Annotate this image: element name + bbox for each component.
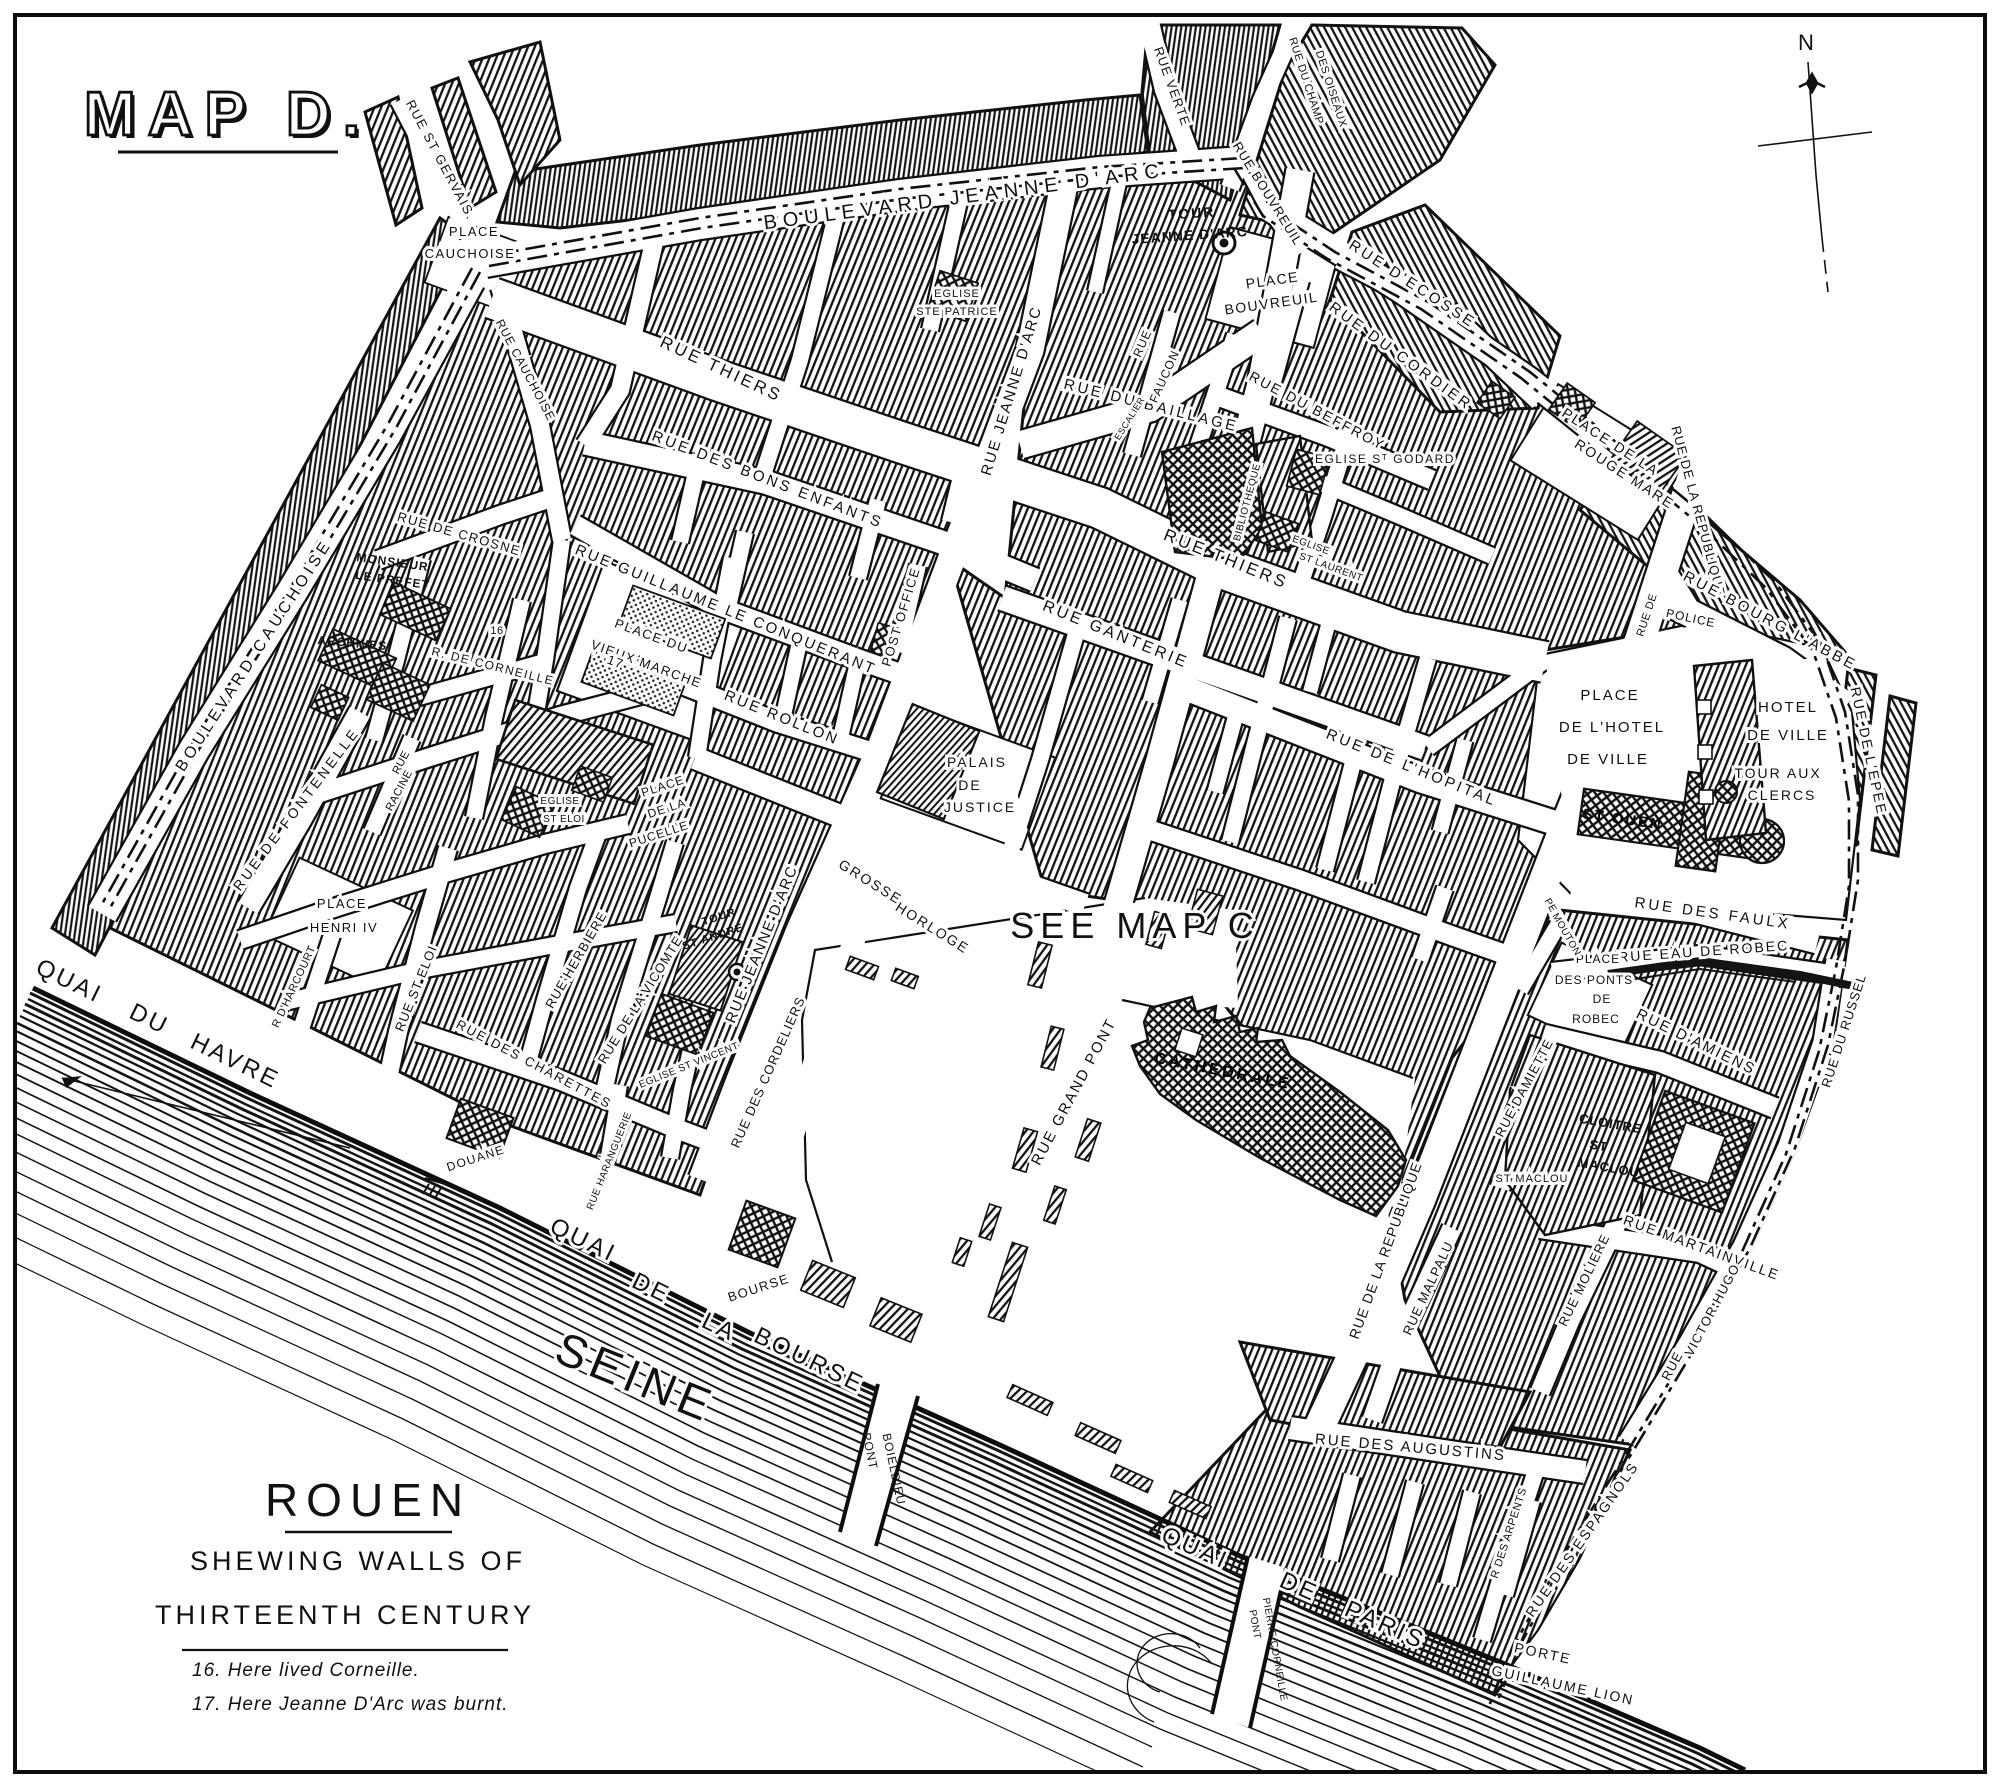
svg-text:EGLISE: EGLISE (934, 288, 980, 300)
svg-text:DE L'HOTEL: DE L'HOTEL (1559, 719, 1665, 736)
svg-text:PLACE: PLACE (449, 224, 499, 239)
svg-text:DES PONTS: DES PONTS (1555, 973, 1633, 987)
svg-text:HENRI IV: HENRI IV (310, 920, 378, 935)
svg-text:ROUEN: ROUEN (265, 1474, 471, 1526)
svg-text:PLACE: PLACE (1580, 687, 1639, 704)
svg-text:16. Here lived Corneille.: 16. Here lived Corneille. (192, 1660, 420, 1681)
svg-text:DE VILLE: DE VILLE (1747, 727, 1829, 744)
svg-text:SEE MAP C: SEE MAP C (1010, 905, 1259, 946)
svg-text:17. Here Jeanne D'Arc was bur: 17. Here Jeanne D'Arc was burnt. (192, 1694, 509, 1715)
svg-text:TOUR AUX: TOUR AUX (1734, 765, 1821, 781)
svg-text:PLACE: PLACE (1576, 952, 1620, 966)
svg-text:PLACE: PLACE (317, 896, 367, 911)
svg-text:EGLISE Sᵀ GODARD: EGLISE Sᵀ GODARD (1315, 452, 1455, 466)
svg-text:DE: DE (958, 777, 981, 793)
svg-text:DE: DE (1593, 992, 1612, 1006)
svg-text:DE VILLE: DE VILLE (1567, 751, 1649, 768)
svg-text:TOUR: TOUR (1167, 203, 1215, 222)
svg-text:PALAIS: PALAIS (947, 754, 1007, 770)
svg-text:CLERCS: CLERCS (1748, 787, 1817, 803)
svg-text:ST MACLOU: ST MACLOU (1496, 1173, 1569, 1185)
svg-text:ST: ST (1588, 1137, 1609, 1155)
svg-text:THIRTEENTH CENTURY: THIRTEENTH CENTURY (155, 1600, 535, 1630)
svg-text:MAP D.: MAP D. (84, 80, 372, 149)
svg-text:EGLISE: EGLISE (540, 796, 579, 807)
svg-text:CAUCHOISE: CAUCHOISE (425, 246, 516, 261)
svg-text:JUSTICE: JUSTICE (944, 799, 1016, 815)
svg-text:HOTEL: HOTEL (1758, 699, 1818, 716)
svg-text:N: N (1798, 30, 1814, 55)
svg-text:SHEWING WALLS OF: SHEWING WALLS OF (190, 1546, 526, 1576)
svg-text:16: 16 (490, 625, 503, 637)
svg-text:STE PATRICE: STE PATRICE (916, 306, 998, 318)
svg-text:ST ELOI: ST ELOI (543, 814, 585, 825)
svg-text:ROBEC: ROBEC (1572, 1012, 1620, 1026)
